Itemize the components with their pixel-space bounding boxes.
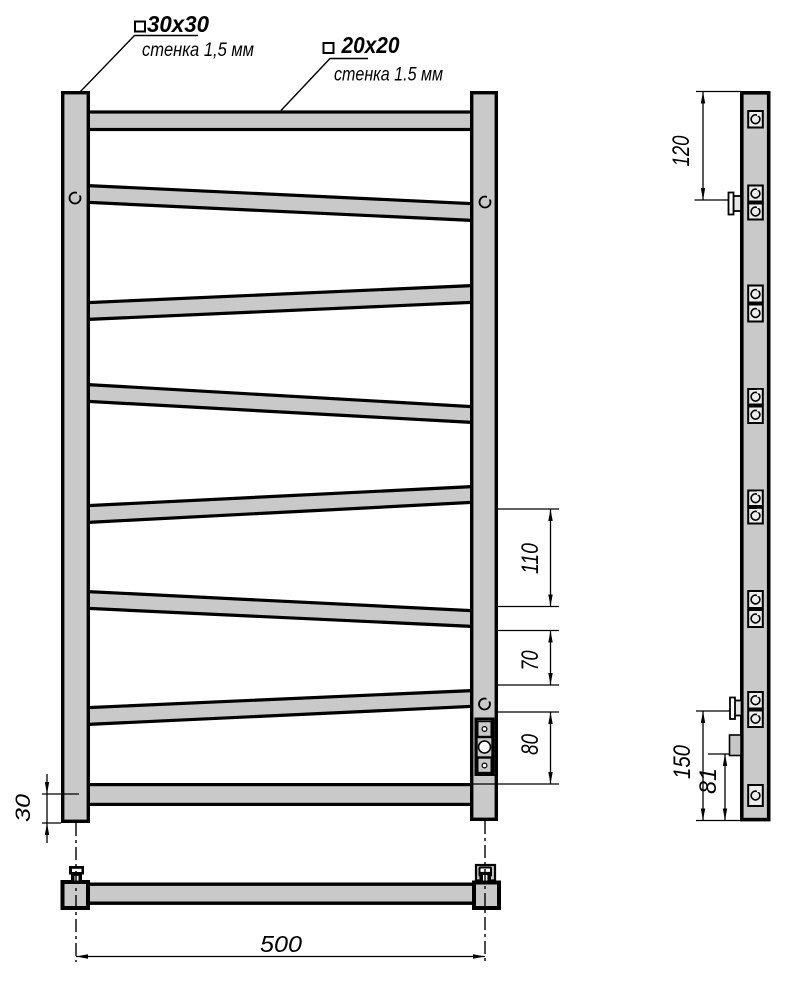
svg-text:стенка 1.5 мм: стенка 1.5 мм (334, 65, 443, 86)
svg-text:500: 500 (260, 931, 302, 957)
svg-text:110: 110 (517, 542, 544, 574)
svg-text:30x30: 30x30 (147, 11, 209, 37)
svg-text:70: 70 (517, 650, 544, 670)
svg-text:120: 120 (668, 135, 695, 167)
svg-text:150: 150 (669, 744, 696, 779)
svg-text:стенка 1,5 мм: стенка 1,5 мм (142, 40, 254, 61)
svg-text:81: 81 (695, 768, 722, 794)
svg-text:30: 30 (12, 794, 35, 822)
svg-text:20x20: 20x20 (341, 32, 400, 58)
svg-text:80: 80 (517, 733, 544, 755)
